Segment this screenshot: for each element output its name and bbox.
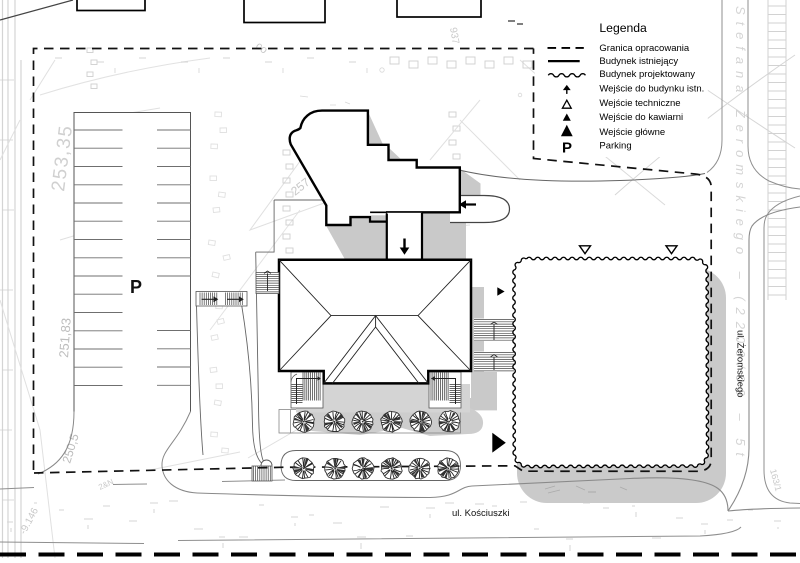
svg-text:P: P: [562, 140, 572, 157]
svg-text:Parking: Parking: [599, 140, 631, 151]
svg-text:Legenda: Legenda: [599, 21, 647, 35]
svg-text:ul. Żeromskiego: ul. Żeromskiego: [735, 330, 746, 398]
svg-text:Granica opracowania: Granica opracowania: [599, 43, 689, 54]
svg-text:Budynek istniejący: Budynek istniejący: [599, 56, 678, 67]
svg-text:Wejście do kawiarni: Wejście do kawiarni: [599, 112, 683, 123]
svg-text:Wejście techniczne: Wejście techniczne: [599, 98, 680, 109]
svg-text:Budynek projektowany: Budynek projektowany: [599, 69, 695, 80]
svg-text:251,83: 251,83: [56, 317, 74, 358]
svg-text:Wejście główne: Wejście główne: [599, 127, 665, 138]
svg-text:ul. Kościuszki: ul. Kościuszki: [452, 508, 510, 519]
svg-text:Wejście do budynku istn.: Wejście do budynku istn.: [599, 83, 704, 94]
svg-text:P: P: [130, 277, 142, 297]
